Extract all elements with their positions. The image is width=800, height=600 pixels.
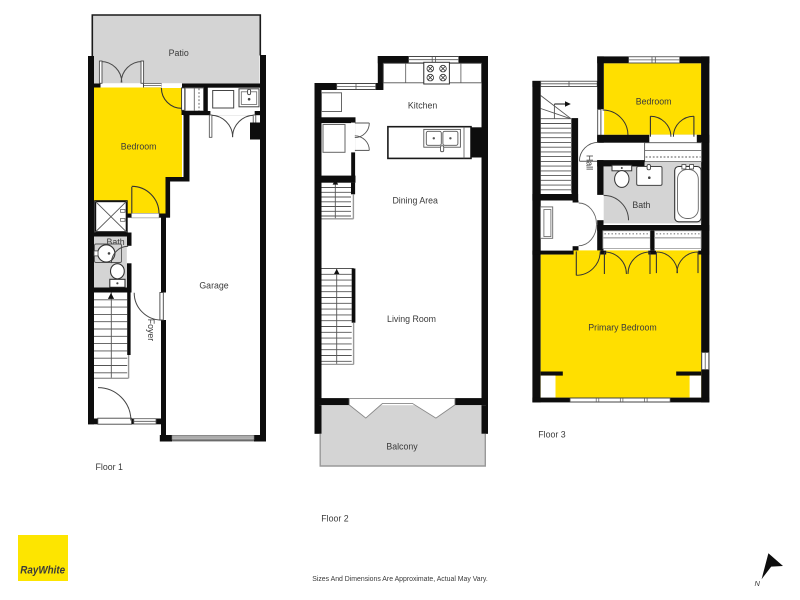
svg-text:Patio: Patio [169,48,189,58]
svg-text:Floor 2: Floor 2 [321,513,348,523]
svg-text:Garage: Garage [199,280,228,290]
svg-text:RayWhite: RayWhite [20,565,65,577]
svg-text:Bedroom: Bedroom [121,142,157,152]
svg-text:Balcony: Balcony [386,441,418,451]
svg-text:Living Room: Living Room [387,314,436,324]
svg-text:N: N [755,579,761,588]
svg-text:Kitchen: Kitchen [408,100,437,110]
svg-text:Floor 1: Floor 1 [96,462,123,472]
svg-text:Bedroom: Bedroom [636,97,672,107]
svg-text:Sizes And Dimensions Are Appro: Sizes And Dimensions Are Approximate, Ac… [312,576,488,583]
svg-text:Bath: Bath [632,200,650,210]
svg-text:Dining Area: Dining Area [392,195,438,205]
svg-text:Primary Bedroom: Primary Bedroom [588,322,656,332]
svg-text:Foyer: Foyer [146,319,156,342]
svg-text:Floor 3: Floor 3 [538,429,565,439]
svg-text:Hall: Hall [584,155,594,170]
